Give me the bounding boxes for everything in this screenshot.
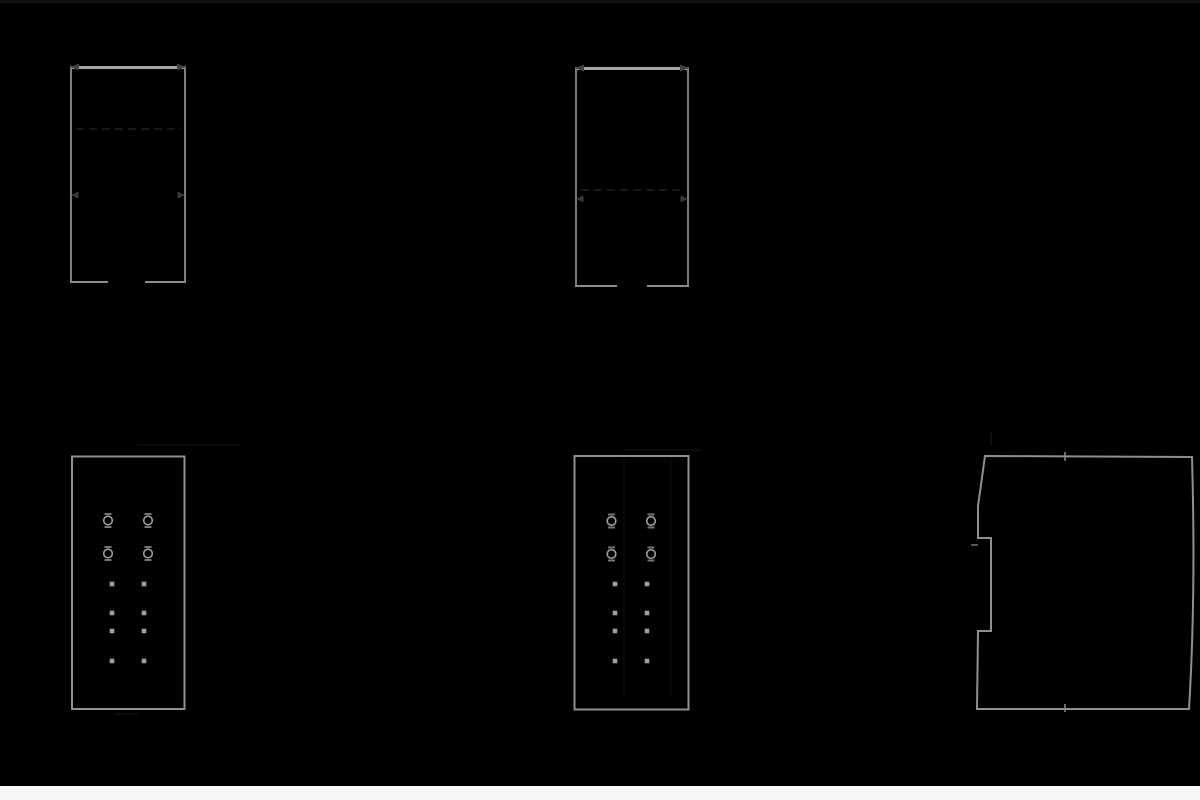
led-indicator-icon [110,629,115,634]
led-indicator-icon [110,582,115,587]
drawing-canvas [0,0,1200,800]
bottom-page-band [0,786,1200,800]
dim-arrow-icon [71,192,79,199]
dim-arrow-icon [178,192,186,199]
led-indicator-icon [142,629,147,634]
dim-arrow-icon [681,196,689,203]
top-edge-band [0,0,1200,3]
screw-terminal-icon [104,514,113,527]
led-indicator-icon [142,582,147,587]
led-indicator-icon [645,659,650,664]
screw-terminal-icon [647,515,656,528]
side-profile-outline [977,456,1193,709]
led-indicator-icon [613,659,618,664]
screw-terminal-icon [607,515,616,528]
led-indicator-icon [142,611,147,616]
led-indicator-icon [613,629,618,634]
screw-terminal-icon [144,547,153,560]
led-indicator-icon [613,611,618,616]
led-indicator-icon [645,582,650,587]
led-indicator-icon [110,659,115,664]
screw-terminal-icon [104,547,113,560]
terminal-view-1-outline [72,457,185,710]
led-indicator-icon [613,582,618,587]
led-indicator-icon [110,611,115,616]
led-indicator-icon [645,611,650,616]
led-indicator-icon [645,629,650,634]
led-indicator-icon [142,659,147,664]
screw-terminal-icon [607,548,616,561]
screw-terminal-icon [647,548,656,561]
dim-arrow-icon [576,196,584,203]
drawing-svg [0,0,1200,800]
screw-terminal-icon [144,514,153,527]
